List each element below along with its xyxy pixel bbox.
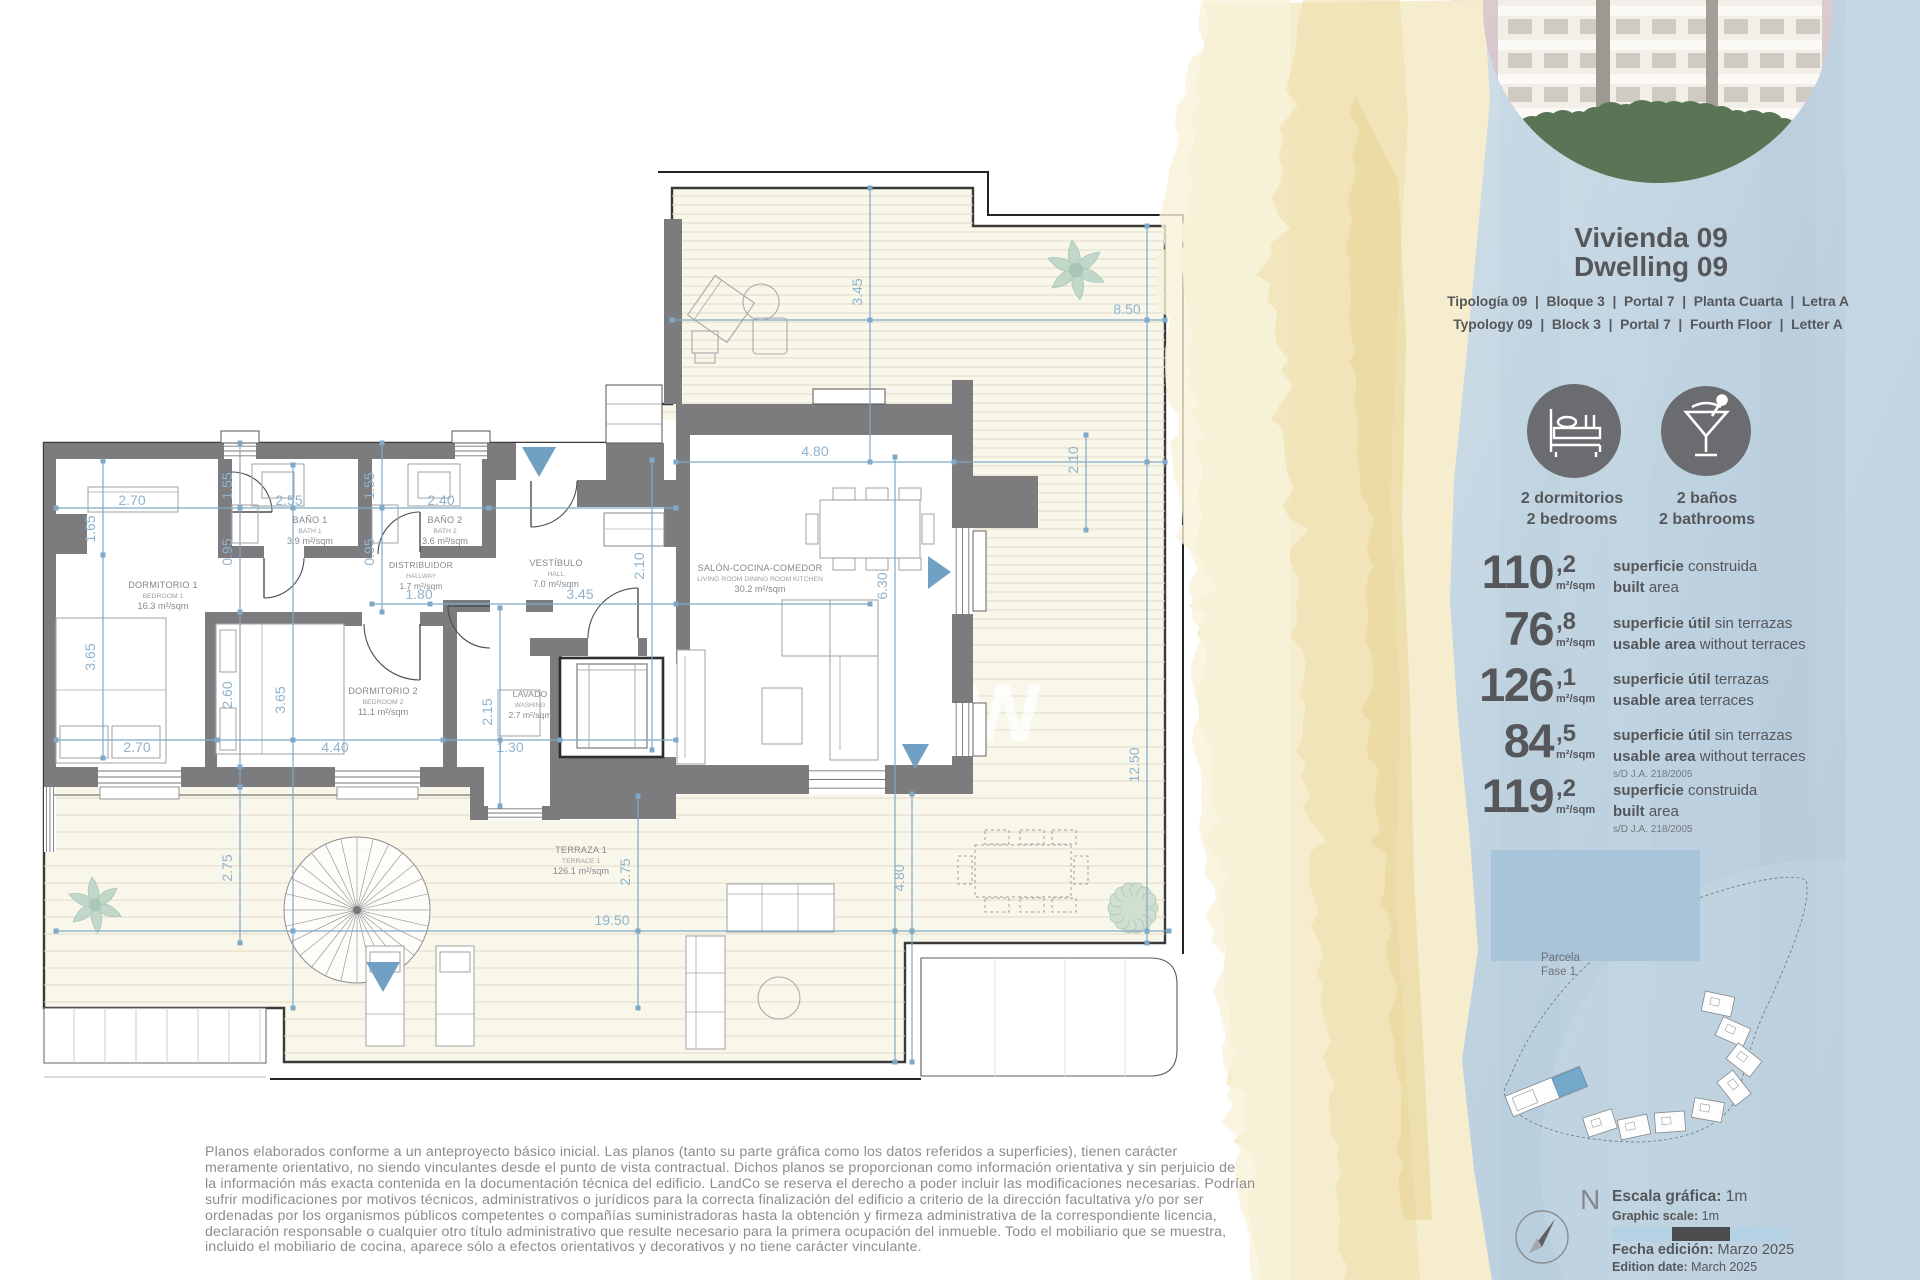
- svg-text:usable area terraces: usable area terraces: [1613, 692, 1754, 709]
- svg-text:76: 76: [1504, 602, 1554, 655]
- svg-text:3.65: 3.65: [82, 643, 98, 670]
- svg-text:HALL: HALL: [547, 571, 564, 578]
- svg-text:BEDROOM 2: BEDROOM 2: [363, 699, 404, 706]
- svg-text:2.75: 2.75: [219, 854, 235, 881]
- svg-text:1.55: 1.55: [361, 472, 377, 499]
- svg-text:SALÓN-COCINA-COMEDOR: SALÓN-COCINA-COMEDOR: [698, 563, 823, 573]
- svg-text:19.50: 19.50: [594, 912, 629, 928]
- svg-text:,8: ,8: [1556, 608, 1576, 635]
- svg-text:2 baños: 2 baños: [1677, 490, 1738, 507]
- svg-text:3.9 m²/sqm: 3.9 m²/sqm: [287, 536, 333, 546]
- svg-text:84: 84: [1504, 714, 1555, 767]
- svg-text:BAÑO 1: BAÑO 1: [293, 515, 328, 525]
- svg-text:LIVING ROOM DINING ROOM KITCHE: LIVING ROOM DINING ROOM KITCHEN: [697, 576, 823, 583]
- svg-text:m²/sqm: m²/sqm: [1556, 693, 1595, 705]
- svg-text:1.7 m²/sqm: 1.7 m²/sqm: [400, 581, 443, 591]
- svg-text:11.1 m²/sqm: 11.1 m²/sqm: [358, 707, 409, 717]
- svg-text:VESTÍBULO: VESTÍBULO: [529, 558, 582, 568]
- svg-text:12.50: 12.50: [1126, 747, 1142, 782]
- svg-text:3.65: 3.65: [272, 686, 288, 713]
- svg-text:DORMITORIO 2: DORMITORIO 2: [348, 686, 418, 696]
- svg-text:LAVADO: LAVADO: [513, 689, 548, 699]
- svg-text:2.70: 2.70: [123, 739, 150, 755]
- svg-text:4.40: 4.40: [321, 739, 348, 755]
- svg-text:2 dormitorios: 2 dormitorios: [1521, 490, 1623, 507]
- svg-text:6.30: 6.30: [874, 572, 890, 599]
- svg-text:DISTRIBUIDOR: DISTRIBUIDOR: [389, 560, 453, 570]
- svg-text:2.10: 2.10: [1065, 446, 1081, 473]
- svg-text:Parcela: Parcela: [1541, 952, 1581, 964]
- svg-text:built area: built area: [1613, 579, 1680, 596]
- svg-text:superficie útil terrazas: superficie útil terrazas: [1613, 671, 1769, 688]
- svg-text:126: 126: [1479, 658, 1553, 711]
- svg-text:m²/sqm: m²/sqm: [1556, 637, 1595, 649]
- svg-text:m²/sqm: m²/sqm: [1556, 749, 1595, 761]
- svg-text:2.7 m²/sqm: 2.7 m²/sqm: [509, 710, 552, 720]
- svg-text:1.65: 1.65: [82, 515, 98, 542]
- svg-text:4.80: 4.80: [801, 443, 828, 459]
- svg-text:Vivienda 09: Vivienda 09: [1574, 222, 1728, 253]
- svg-text:3.6 m²/sqm: 3.6 m²/sqm: [422, 536, 468, 546]
- svg-text:,5: ,5: [1556, 720, 1576, 747]
- svg-text:Fase 1: Fase 1: [1541, 966, 1576, 978]
- svg-text:m²/sqm: m²/sqm: [1556, 804, 1595, 816]
- svg-text:s/D J.A. 218/2005: s/D J.A. 218/2005: [1613, 824, 1693, 835]
- svg-text:Dwelling 09: Dwelling 09: [1574, 251, 1728, 282]
- svg-text:2 bathrooms: 2 bathrooms: [1659, 511, 1755, 528]
- svg-text:built area: built area: [1613, 803, 1680, 820]
- svg-text:Graphic scale: 1m: Graphic scale: 1m: [1612, 1209, 1719, 1223]
- svg-text:7.0 m²/sqm: 7.0 m²/sqm: [533, 579, 579, 589]
- svg-text:TERRAZA 1: TERRAZA 1: [555, 845, 607, 855]
- svg-text:30.2 m²/sqm: 30.2 m²/sqm: [734, 584, 785, 594]
- svg-text:Escala gráfica: 1m: Escala gráfica: 1m: [1612, 1188, 1747, 1205]
- svg-text:HALLWAY: HALLWAY: [406, 573, 437, 580]
- svg-text:s/D J.A. 218/2005: s/D J.A. 218/2005: [1613, 769, 1693, 780]
- svg-text:DORMITORIO 1: DORMITORIO 1: [128, 580, 198, 590]
- svg-text:,2: ,2: [1556, 551, 1576, 578]
- svg-text:1.55: 1.55: [219, 472, 235, 499]
- svg-text:BATH 1: BATH 1: [298, 528, 322, 535]
- svg-text:2.60: 2.60: [219, 681, 235, 708]
- svg-text:Tipología 09 | Bloque 3 |: Tipología 09 | Bloque 3 | Portal 7 | Pla…: [1447, 294, 1849, 309]
- svg-text:superficie útil sin terrazas: superficie útil sin terrazas: [1613, 727, 1792, 744]
- svg-text:0.95: 0.95: [219, 538, 235, 565]
- svg-text:8.50: 8.50: [1113, 301, 1140, 317]
- svg-text:2.10: 2.10: [631, 552, 647, 579]
- svg-text:superficie construida: superficie construida: [1613, 782, 1758, 799]
- svg-text:TERRACE 1: TERRACE 1: [562, 858, 600, 865]
- svg-text:N: N: [1580, 1184, 1600, 1215]
- svg-text:0.95: 0.95: [361, 538, 377, 565]
- svg-text:BEDROOM 1: BEDROOM 1: [143, 593, 184, 600]
- svg-text:3.45: 3.45: [849, 278, 865, 305]
- svg-text:Typology 09 | Block 3 | Po: Typology 09 | Block 3 | Portal 7 | Fourt…: [1453, 317, 1843, 332]
- svg-text:2.40: 2.40: [427, 492, 454, 508]
- svg-text:2.70: 2.70: [118, 492, 145, 508]
- svg-text:m²/sqm: m²/sqm: [1556, 580, 1595, 592]
- svg-text:2.55: 2.55: [275, 492, 302, 508]
- svg-text:BAÑO 2: BAÑO 2: [428, 515, 463, 525]
- svg-text:16.3 m²/sqm: 16.3 m²/sqm: [137, 601, 188, 611]
- svg-text:2 bedrooms: 2 bedrooms: [1527, 511, 1618, 528]
- svg-text:Edition date: March 2025: Edition date: March 2025: [1612, 1260, 1757, 1274]
- svg-text:,1: ,1: [1556, 664, 1576, 691]
- svg-text:BATH 2: BATH 2: [433, 528, 457, 535]
- svg-text:110: 110: [1482, 545, 1554, 598]
- svg-text:superficie útil sin terrazas: superficie útil sin terrazas: [1613, 615, 1792, 632]
- svg-text:126.1 m²/sqm: 126.1 m²/sqm: [553, 866, 610, 876]
- svg-text:119: 119: [1482, 769, 1554, 822]
- svg-text:usable area without terraces: usable area without terraces: [1613, 636, 1806, 653]
- svg-text:Fecha edición: Marzo 2025: Fecha edición: Marzo 2025: [1612, 1242, 1794, 1258]
- svg-text:,2: ,2: [1556, 775, 1576, 802]
- svg-text:usable area without terraces: usable area without terraces: [1613, 748, 1806, 765]
- svg-text:2.75: 2.75: [617, 858, 633, 885]
- svg-text:4.80: 4.80: [891, 864, 907, 891]
- svg-text:superficie construida: superficie construida: [1613, 558, 1758, 575]
- svg-text:WASHING: WASHING: [515, 702, 546, 709]
- svg-text:2.15: 2.15: [479, 698, 495, 725]
